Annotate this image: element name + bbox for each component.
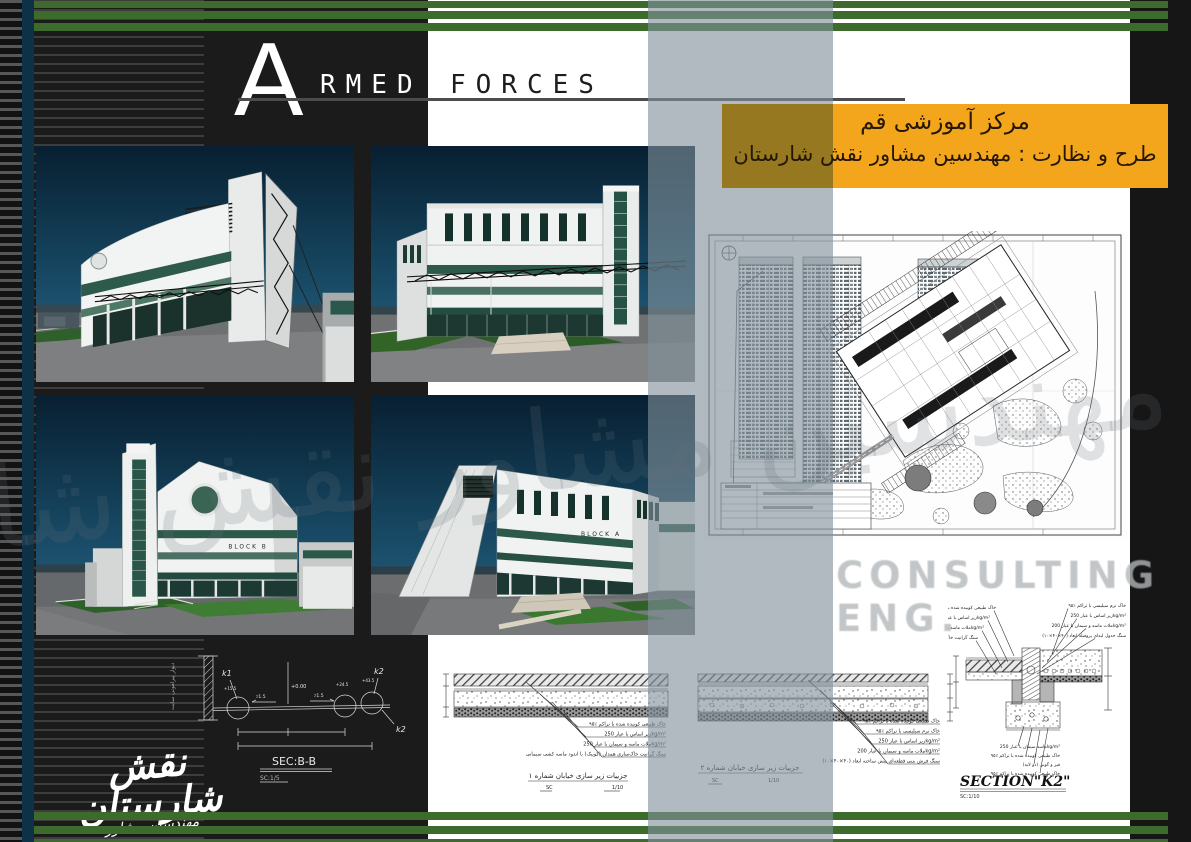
navy-vertical-bar <box>22 0 34 842</box>
block-a-label: BLOCK A <box>581 531 621 538</box>
top-green-stripe-2 <box>34 11 1168 19</box>
left-stripe-column <box>0 0 22 842</box>
elev-mark-1: +15.5 <box>224 686 237 691</box>
street1-title: جزییات زیر سازی خیابان شماره ۱ <box>529 772 628 780</box>
elev-mark-2: +24.5 <box>336 682 349 687</box>
presentation-board: A RMED FORCES <box>0 0 1191 842</box>
street1-scale-value: 1/10 <box>612 785 623 791</box>
section-k2-title: SECTION"K2" <box>960 774 1070 790</box>
street2-annotation-3: زیر اساس با عیار 250kg/m² <box>878 739 940 745</box>
elev-mark-3: +43.5 <box>362 678 375 683</box>
street2-annotation-4: ملات ماسه و سیمان با عیار 200kg/m² <box>857 749 940 755</box>
k2-label-2: k2 <box>396 725 406 734</box>
header-word-forces: FORCES <box>450 70 604 100</box>
top-green-stripe-1 <box>34 1 1168 8</box>
consulting-watermark: CONSULTING ENG. <box>836 554 1191 640</box>
section-k2-scale: SC:1/10 <box>960 794 980 800</box>
header-big-letter: A <box>234 28 303 132</box>
bottom-green-stripe-1 <box>34 812 1168 820</box>
k2-label: k2 <box>374 667 384 676</box>
header-word-armed: RMED <box>320 70 423 100</box>
project-title: مرکز آموزشی قم <box>722 109 1168 135</box>
slope-right-label: ٪1.5 <box>314 693 324 699</box>
street2-annotation-2: خاک نرم سیلیسی با تراکم ٪۹۵ <box>876 728 940 735</box>
project-title-box: مرکز آموزشی قم طرح و نظارت : مهندسین مشا… <box>722 104 1168 188</box>
perimeter-wall-label: دیوار پیرامونی سایت <box>170 662 176 710</box>
street2-annotation-5: سنگ فرش بتنی قطعه‌ای پیش ساخته ابعاد (۴۰… <box>822 758 940 765</box>
elevation-label: +0.00 <box>291 684 306 690</box>
k1-label: k1 <box>222 669 232 678</box>
render-building-view-2 <box>371 146 695 382</box>
k2-annot-bottom-2: خاک طبیعی کوبیده شده با تراکم ٪۹۵ <box>991 753 1060 759</box>
street2-annotation-1: خاک طبیعی کوبیده شده با تراکم ٪۹۵ <box>863 718 940 725</box>
slope-left-label: ٪1.5 <box>256 694 266 700</box>
bottom-green-stripe-2 <box>34 826 1168 834</box>
top-green-stripe-3 <box>34 23 1168 31</box>
k2-annot-bottom-3: قیر و گونی (دو لایه) <box>1023 761 1060 768</box>
project-subtitle: طرح و نظارت : مهندسین مشاور نقش شارستان <box>722 142 1168 166</box>
street1-annotation-4: سنگ گرانیت خاک‌ساری همدان (کوبیک) با اند… <box>526 751 666 758</box>
section-bb-title: SEC:B-B <box>272 755 316 768</box>
k2-annot-bottom-1: ماسه سیمان با عیار 250kg/m² <box>1000 744 1060 750</box>
street1-scale-label: SC <box>546 785 553 791</box>
render-building-view-1 <box>36 146 354 382</box>
